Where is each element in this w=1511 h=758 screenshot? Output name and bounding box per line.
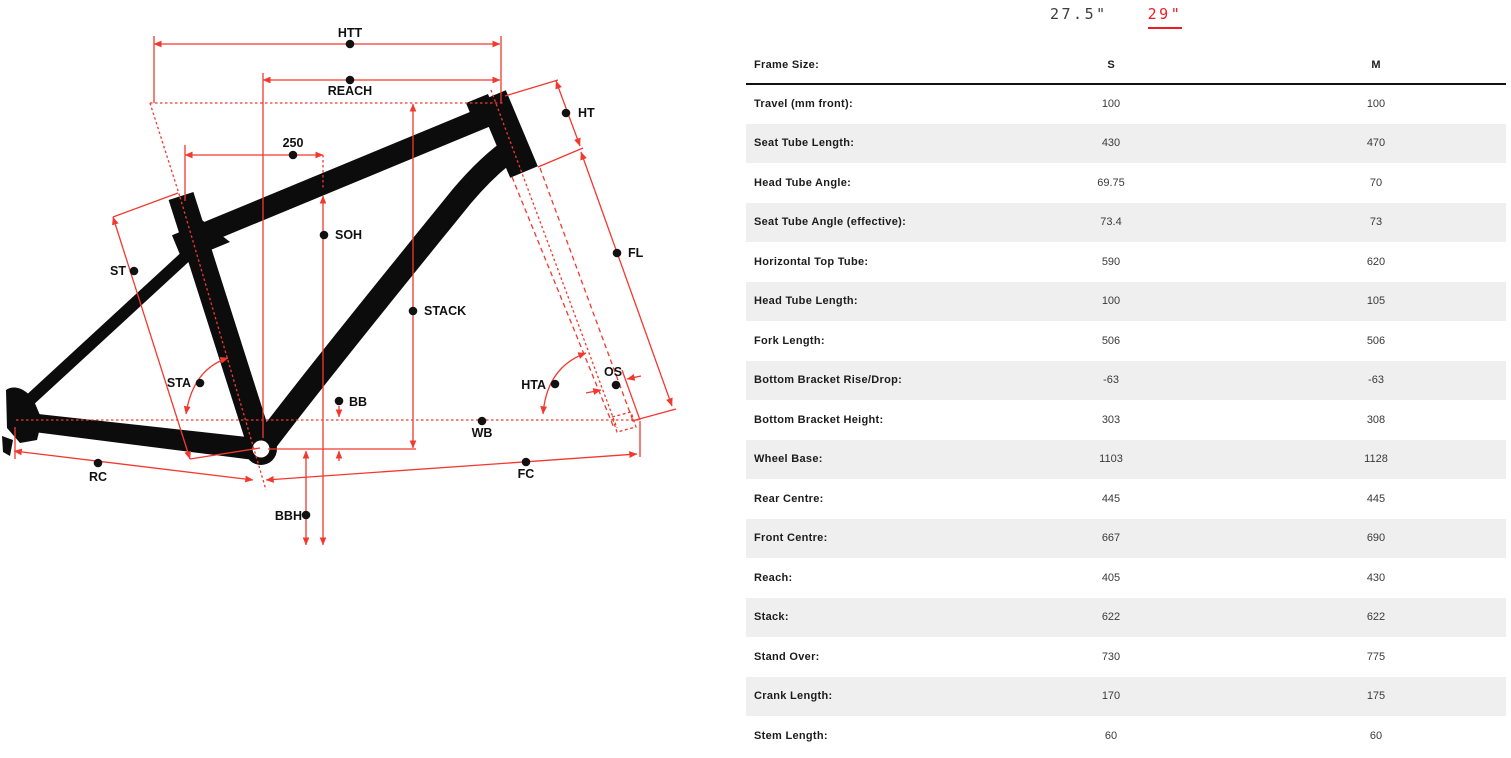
dimension-label-rc: RC [89, 470, 107, 484]
cell-value: 775 [1246, 637, 1506, 677]
table-row: Head Tube Length:100105 [746, 282, 1506, 322]
cell-value: 690 [1246, 519, 1506, 559]
dimension-dot-bbh [302, 511, 311, 520]
table-row: Head Tube Angle:69.7570 [746, 163, 1506, 203]
cell-value: 70 [1246, 163, 1506, 203]
dimension-label-hta: HTA [521, 378, 546, 392]
cell-value: -63 [1246, 361, 1506, 401]
row-label: Seat Tube Length: [746, 124, 976, 164]
cell-value: 667 [976, 519, 1246, 559]
dimension-dot-os [612, 381, 621, 390]
cell-value: 308 [1246, 400, 1506, 440]
cell-value: 405 [976, 558, 1246, 598]
row-label: Seat Tube Angle (effective): [746, 203, 976, 243]
cell-value: 1103 [976, 440, 1246, 480]
cell-value: 430 [1246, 558, 1506, 598]
dimension-dot-ht [562, 109, 571, 118]
cell-value: 100 [1246, 84, 1506, 124]
table-header-row: Frame Size: S M [746, 46, 1506, 84]
table-row: Bottom Bracket Rise/Drop:-63-63 [746, 361, 1506, 401]
dimension-dot-stack [409, 307, 418, 316]
cell-value: 100 [976, 84, 1246, 124]
column-header-m: M [1246, 46, 1506, 84]
dimension-label-st: ST [110, 264, 126, 278]
frame-geometry-diagram: HTTREACH250HTSOHSTFLSTACKSTABBHTAOSWBRCF… [0, 0, 740, 758]
dimension-label-htt: HTT [338, 26, 363, 40]
row-label: Front Centre: [746, 519, 976, 559]
row-label: Stem Length: [746, 716, 976, 756]
cell-value: 622 [1246, 598, 1506, 638]
cell-value: 73 [1246, 203, 1506, 243]
geometry-page: HTTREACH250HTSOHSTFLSTACKSTABBHTAOSWBRCF… [0, 0, 1511, 758]
dimension-dot-htt [346, 40, 355, 49]
dimension-lines [14, 36, 676, 545]
dimension-dot-bb [335, 397, 344, 406]
dimension-label-stack: STACK [424, 304, 466, 318]
cell-value: 430 [976, 124, 1246, 164]
row-label: Head Tube Angle: [746, 163, 976, 203]
row-label: Fork Length: [746, 321, 976, 361]
table-row: Fork Length:506506 [746, 321, 1506, 361]
dimension-dot-wb [478, 417, 487, 426]
table-row: Wheel Base:11031128 [746, 440, 1506, 480]
table-row: Rear Centre:445445 [746, 479, 1506, 519]
cell-value: 1128 [1246, 440, 1506, 480]
row-label: Stack: [746, 598, 976, 638]
dimension-dot-st [130, 267, 139, 276]
dimension-dot-rc [94, 459, 103, 468]
row-label: Bottom Bracket Rise/Drop: [746, 361, 976, 401]
cell-value: 73.4 [976, 203, 1246, 243]
geometry-table-wrap: Frame Size: S M Travel (mm front):100100… [746, 46, 1506, 756]
dimension-label-reach: REACH [328, 84, 372, 98]
dimension-dot-hta [551, 380, 560, 389]
table-row: Front Centre:667690 [746, 519, 1506, 559]
cell-value: 506 [976, 321, 1246, 361]
table-row: Bottom Bracket Height:303308 [746, 400, 1506, 440]
dimension-label-ht: HT [578, 106, 595, 120]
dimension-dot-soh [320, 231, 329, 240]
row-label: Stand Over: [746, 637, 976, 677]
cell-value: 470 [1246, 124, 1506, 164]
cell-value: 105 [1246, 282, 1506, 322]
dimension-dot-fc [522, 458, 531, 467]
table-row: Seat Tube Angle (effective):73.473 [746, 203, 1506, 243]
dimension-dot-fl [613, 249, 622, 258]
row-label: Travel (mm front): [746, 84, 976, 124]
dimension-label-fl: FL [628, 246, 644, 260]
row-label: Head Tube Length: [746, 282, 976, 322]
cell-value: 69.75 [976, 163, 1246, 203]
cell-value: 60 [976, 716, 1246, 756]
dimension-label-sta: STA [167, 376, 191, 390]
cell-value: 590 [976, 242, 1246, 282]
table-row: Seat Tube Length:430470 [746, 124, 1506, 164]
cell-value: 100 [976, 282, 1246, 322]
cell-value: 620 [1246, 242, 1506, 282]
table-row: Stand Over:730775 [746, 637, 1506, 677]
row-label: Reach: [746, 558, 976, 598]
row-label: Horizontal Top Tube: [746, 242, 976, 282]
geometry-table: Frame Size: S M Travel (mm front):100100… [746, 46, 1506, 756]
cell-value: 175 [1246, 677, 1506, 717]
dimension-dot-250 [289, 151, 298, 160]
wheel-size-tab-29[interactable]: 29" [1148, 5, 1183, 29]
cell-value: 730 [976, 637, 1246, 677]
table-row: Crank Length:170175 [746, 677, 1506, 717]
row-label: Rear Centre: [746, 479, 976, 519]
cell-value: 170 [976, 677, 1246, 717]
cell-value: 303 [976, 400, 1246, 440]
cell-value: 506 [1246, 321, 1506, 361]
cell-value: -63 [976, 361, 1246, 401]
cell-value: 445 [1246, 479, 1506, 519]
wheel-size-tabs: 27.5" 29" [1050, 5, 1182, 29]
table-row: Reach:405430 [746, 558, 1506, 598]
cell-value: 445 [976, 479, 1246, 519]
dimension-label-bb: BB [349, 395, 367, 409]
cell-value: 60 [1246, 716, 1506, 756]
table-row: Stack:622622 [746, 598, 1506, 638]
dimension-label-bbh: BBH [275, 509, 302, 523]
wheel-size-tab-27-5[interactable]: 27.5" [1050, 5, 1108, 27]
cell-value: 622 [976, 598, 1246, 638]
dimension-dot-sta [196, 379, 205, 388]
dimension-label-wb: WB [472, 426, 493, 440]
frame-size-header: Frame Size: [746, 46, 976, 84]
column-header-s: S [976, 46, 1246, 84]
dimension-dot-reach [346, 76, 355, 85]
dimension-label-soh: SOH [335, 228, 362, 242]
dimension-label-os: OS [604, 365, 622, 379]
dimension-label-250: 250 [283, 136, 304, 150]
row-label: Bottom Bracket Height: [746, 400, 976, 440]
table-row: Stem Length:6060 [746, 716, 1506, 756]
table-row: Horizontal Top Tube:590620 [746, 242, 1506, 282]
row-label: Crank Length: [746, 677, 976, 717]
table-row: Travel (mm front):100100 [746, 84, 1506, 124]
dimension-label-fc: FC [518, 467, 535, 481]
bike-frame-silhouette [2, 90, 538, 465]
row-label: Wheel Base: [746, 440, 976, 480]
frame-geometry-diagram-panel: HTTREACH250HTSOHSTFLSTACKSTABBHTAOSWBRCF… [0, 0, 740, 758]
